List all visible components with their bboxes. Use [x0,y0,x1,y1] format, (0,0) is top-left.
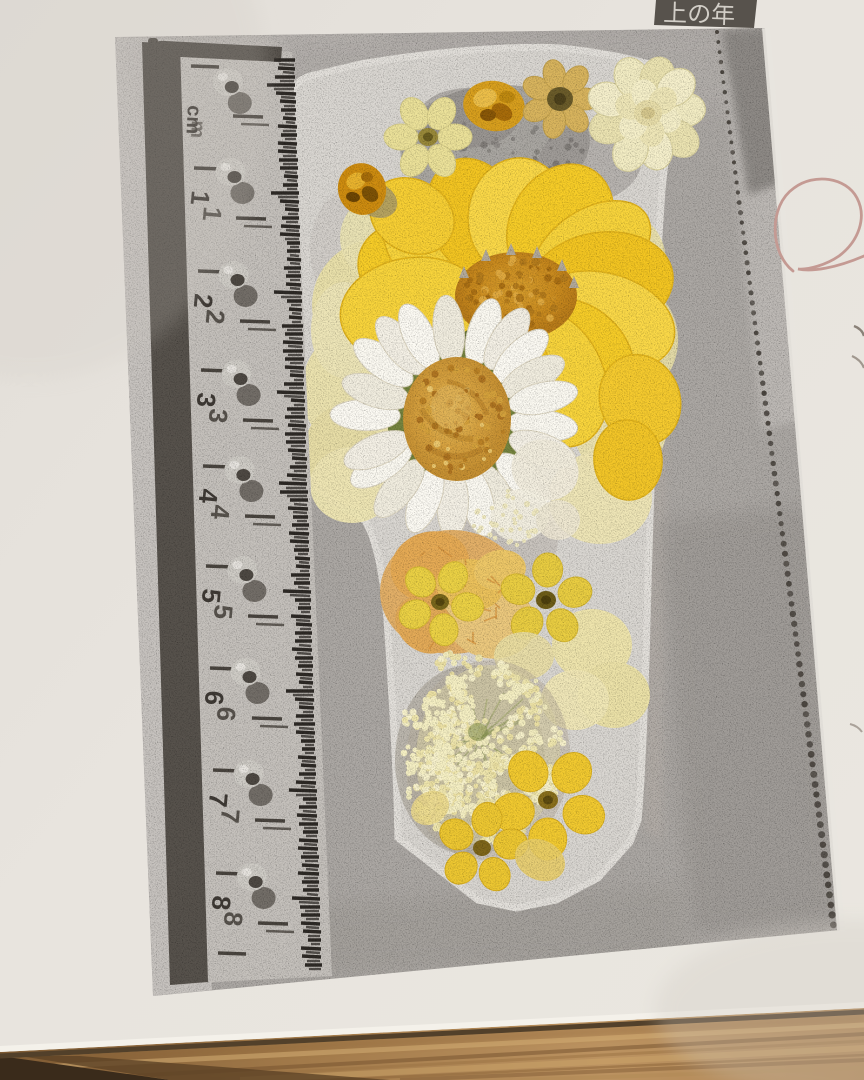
svg-text:上の年: 上の年 [663,0,736,29]
